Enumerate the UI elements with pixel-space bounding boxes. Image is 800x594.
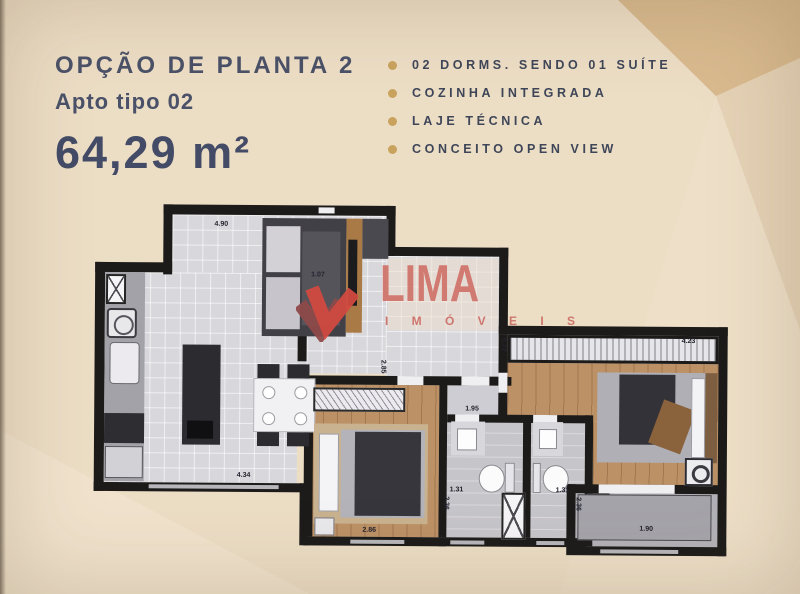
- fridge: [105, 446, 143, 478]
- sofa-cushion: [266, 226, 300, 272]
- dimension-label: 4.23: [682, 338, 696, 345]
- bed2-pillows: [319, 433, 340, 511]
- dimension-label: 5.72: [500, 338, 507, 352]
- dimension-label: 1.31: [556, 487, 570, 494]
- kitchen-sink: [109, 342, 139, 384]
- cooktop: [104, 413, 144, 443]
- nightstand: [314, 517, 334, 535]
- bath1-toilet-tank: [505, 463, 515, 493]
- washer-drum: [114, 315, 134, 335]
- suite-stool: [685, 458, 713, 486]
- wall-segment: [438, 384, 447, 537]
- suite-bed-pillows: [691, 378, 706, 458]
- logo-text: LIMA: [380, 254, 479, 314]
- dimension-label: 1.07: [311, 271, 325, 278]
- wardrobe: [313, 387, 405, 412]
- stool-seat: [692, 465, 710, 483]
- plate: [262, 412, 275, 425]
- dimension-label: 2.86: [362, 527, 376, 534]
- door-opening: [461, 376, 489, 385]
- dimension-label: 2.85: [379, 360, 386, 374]
- sofa-cushion: [266, 277, 300, 329]
- door-opening: [599, 484, 675, 494]
- logo-tagline: I M Ó V E I S: [385, 314, 585, 328]
- dining-chair: [287, 432, 309, 446]
- bed2-blanket: [354, 432, 421, 516]
- dining-table: [253, 378, 315, 432]
- dimension-label: 1.90: [639, 526, 653, 533]
- duct-shaft: [501, 493, 525, 540]
- suite-headboard: [705, 373, 718, 463]
- dining-chair: [257, 432, 279, 446]
- bath1-toilet-bowl: [479, 465, 505, 493]
- bath2-toilet-tank: [533, 463, 541, 493]
- kitchen-island: [182, 344, 221, 444]
- dimension-label: 2.36: [443, 496, 450, 510]
- plate: [294, 412, 307, 425]
- cabinet: [362, 219, 388, 259]
- wall-segment: [164, 204, 396, 216]
- dimension-label: 4.34: [237, 472, 251, 479]
- brochure-page: OPÇÃO DE PLANTA 2 Apto tipo 02 64,29 m² …: [0, 0, 800, 594]
- door-opening: [397, 376, 423, 385]
- plate: [294, 386, 307, 399]
- dimension-label: 1.95: [465, 405, 479, 412]
- dimension-label: 2.36: [575, 497, 582, 511]
- wall-segment: [95, 262, 172, 273]
- bath1-basin: [457, 428, 477, 450]
- door-opening: [498, 373, 507, 393]
- dining-chair: [287, 364, 309, 378]
- dimension-label: 4.90: [214, 221, 228, 228]
- suite-closet: [577, 494, 711, 541]
- window: [350, 540, 404, 544]
- island-sink: [187, 421, 213, 439]
- duct-shaft: [106, 274, 126, 304]
- plate: [262, 386, 275, 399]
- wall-segment: [717, 327, 728, 556]
- dimension-label: 1.31: [450, 486, 464, 493]
- bath2-basin: [539, 429, 557, 449]
- check-ribbon-icon: [296, 280, 358, 347]
- window: [536, 541, 564, 545]
- window: [600, 549, 678, 554]
- washer: [107, 308, 137, 338]
- window: [450, 540, 484, 544]
- dining-chair: [257, 364, 279, 378]
- door-opening: [319, 207, 335, 213]
